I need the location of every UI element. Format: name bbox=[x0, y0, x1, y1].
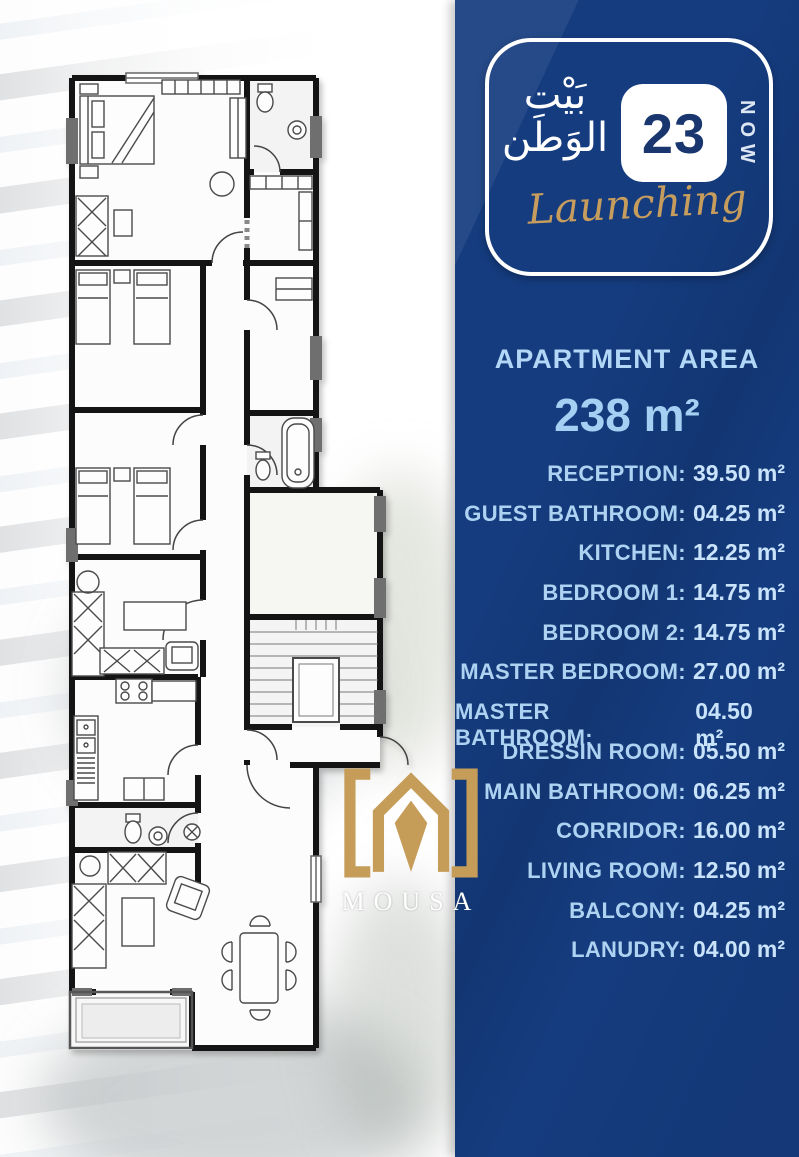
room-label: BEDROOM 1: bbox=[542, 580, 686, 606]
brand-arabic-name: بَيْت الوَطَن bbox=[491, 74, 619, 160]
room-row: LANUDRY:04.00 m² bbox=[455, 936, 785, 976]
room-row: BEDROOM 2:14.75 m² bbox=[455, 619, 785, 659]
stove-icon bbox=[116, 679, 152, 703]
toilet-icon bbox=[125, 814, 141, 843]
room-value: 16.00 m² bbox=[693, 817, 785, 844]
room-value: 05.50 m² bbox=[693, 738, 785, 765]
developer-watermark: MOUSA bbox=[338, 766, 484, 917]
room-value: 04.25 m² bbox=[693, 897, 785, 924]
room-row: KITCHEN:12.25 m² bbox=[455, 539, 785, 579]
room-label: CORRIDOR: bbox=[556, 818, 686, 844]
phase-number: 23 bbox=[642, 101, 706, 166]
sofa-icon bbox=[108, 852, 166, 884]
toilet-icon bbox=[256, 452, 270, 480]
room-value: 06.25 m² bbox=[693, 778, 785, 805]
bathtub-icon bbox=[282, 418, 314, 488]
dresser-icon bbox=[276, 278, 312, 300]
room-row: LIVING ROOM:12.50 m² bbox=[455, 857, 785, 897]
apartment-area-title: APARTMENT AREA bbox=[455, 344, 799, 375]
brand-arabic-line1: بَيْت bbox=[491, 74, 619, 117]
room-value: 14.75 m² bbox=[693, 579, 785, 606]
coffee-table-icon bbox=[122, 898, 154, 946]
developer-name: MOUSA bbox=[338, 887, 484, 917]
room-label: GUEST BATHROOM: bbox=[464, 501, 686, 527]
room-label: DRESSIN ROOM: bbox=[502, 739, 686, 765]
flyer-canvas: بَيْت الوَطَن 23 NOW Launching APARTMENT… bbox=[0, 0, 799, 1157]
brand-arabic-line2: الوَطَن bbox=[491, 117, 619, 160]
room-row: GUEST BATHROOM:04.25 m² bbox=[455, 500, 785, 540]
floor-plan-area bbox=[0, 0, 455, 1157]
room-value: 12.50 m² bbox=[693, 857, 785, 884]
room-list: RECEPTION:39.50 m²GUEST BATHROOM:04.25 m… bbox=[455, 460, 785, 976]
sink-icon bbox=[288, 121, 306, 139]
drain-icon bbox=[184, 824, 200, 840]
fridge-icon bbox=[124, 778, 164, 800]
room-row: BEDROOM 1:14.75 m² bbox=[455, 579, 785, 619]
room-value: 04.25 m² bbox=[693, 500, 785, 527]
room-value: 14.75 m² bbox=[693, 619, 785, 646]
info-panel: بَيْت الوَطَن 23 NOW Launching APARTMENT… bbox=[455, 0, 799, 1157]
mousa-logo-icon bbox=[338, 766, 484, 880]
coffee-table-icon bbox=[124, 602, 186, 630]
launching-script-label: Launching bbox=[510, 173, 764, 234]
room-label: KITCHEN: bbox=[578, 540, 686, 566]
room-label: BEDROOM 2: bbox=[542, 620, 686, 646]
room-row: MAIN BATHROOM:06.25 m² bbox=[455, 778, 785, 818]
room-value: 12.25 m² bbox=[693, 539, 785, 566]
room-value: 04.00 m² bbox=[693, 936, 785, 963]
room-row: MASTER BEDROOM:27.00 m² bbox=[455, 658, 785, 698]
sink-icon bbox=[149, 827, 167, 845]
room-label: LIVING ROOM: bbox=[527, 858, 686, 884]
room-value: 39.50 m² bbox=[693, 460, 785, 487]
apartment-total-area: 238 m² bbox=[455, 388, 799, 442]
room-label: LANUDRY: bbox=[571, 937, 686, 963]
toilet-icon bbox=[257, 84, 273, 112]
room-row: DRESSIN ROOM:05.50 m² bbox=[455, 738, 785, 778]
room-label: MAIN BATHROOM: bbox=[484, 779, 686, 805]
brand-badge: بَيْت الوَطَن 23 NOW Launching bbox=[485, 38, 773, 276]
room-row: BALCONY:04.25 m² bbox=[455, 897, 785, 937]
floor-plan bbox=[0, 0, 455, 1157]
room-label: BALCONY: bbox=[569, 898, 686, 924]
room-value: 27.00 m² bbox=[693, 658, 785, 685]
phase-number-box: 23 bbox=[621, 84, 727, 182]
room-row: CORRIDOR:16.00 m² bbox=[455, 817, 785, 857]
armchair-icon bbox=[166, 642, 198, 670]
double-bed-icon bbox=[80, 84, 154, 178]
l-sofa-icon bbox=[72, 884, 106, 968]
room-row: RECEPTION:39.50 m² bbox=[455, 460, 785, 500]
room-label: RECEPTION: bbox=[547, 461, 686, 487]
elevator-icon bbox=[293, 658, 339, 722]
room-label: MASTER BEDROOM: bbox=[460, 659, 686, 685]
room-row: MASTER BATHROOM:04.50 m² bbox=[455, 698, 785, 738]
